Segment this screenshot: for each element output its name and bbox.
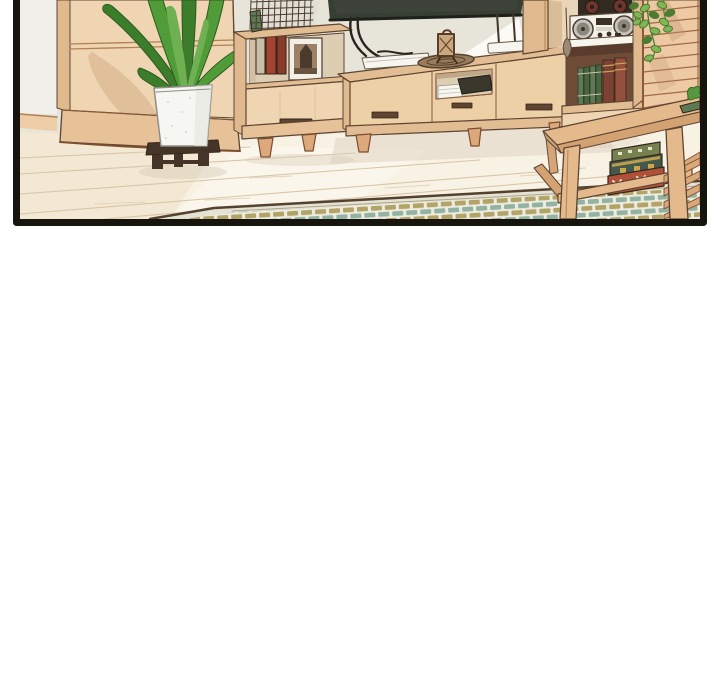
comic-panel-image	[0, 0, 720, 700]
page: Webtoon panel: a cozy living-room corner…	[0, 0, 720, 700]
left-wall	[20, 0, 57, 114]
table-leg	[560, 145, 580, 219]
picture-frame	[289, 38, 322, 80]
tv-screen	[328, 0, 523, 20]
shelf-books	[256, 36, 286, 74]
door-handle	[372, 112, 398, 118]
drawer-handle	[452, 103, 472, 108]
small-plant-on-table	[687, 86, 700, 99]
door-handle	[526, 104, 552, 110]
webtoon-panel: Webtoon panel: a cozy living-room corner…	[0, 0, 720, 700]
plant-pot	[154, 85, 212, 146]
